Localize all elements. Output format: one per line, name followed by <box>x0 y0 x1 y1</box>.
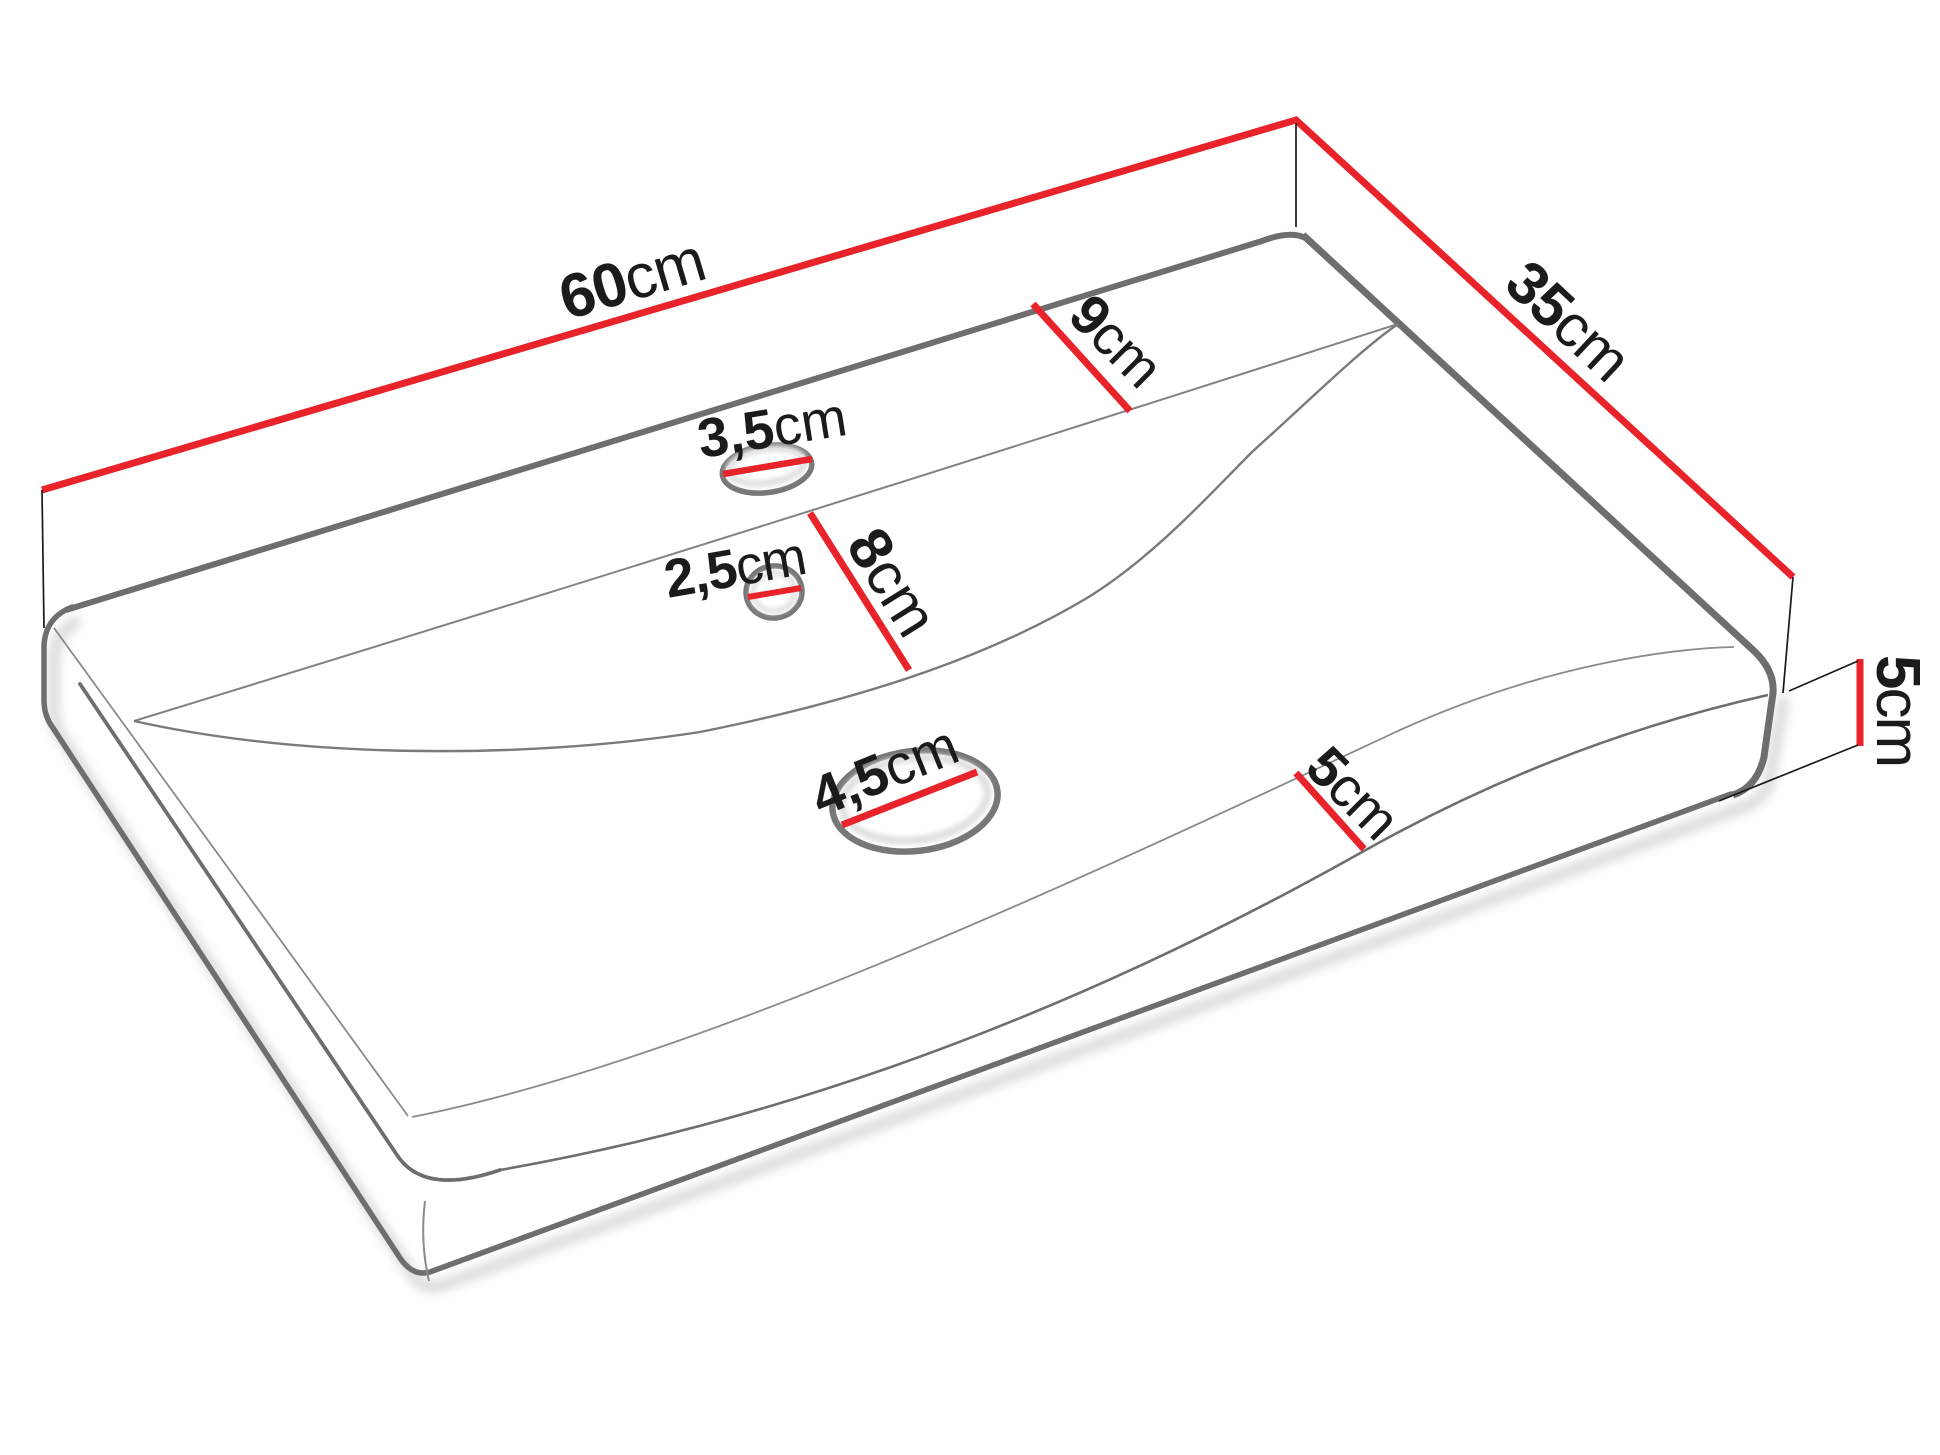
svg-text:5cm: 5cm <box>1863 655 1932 766</box>
